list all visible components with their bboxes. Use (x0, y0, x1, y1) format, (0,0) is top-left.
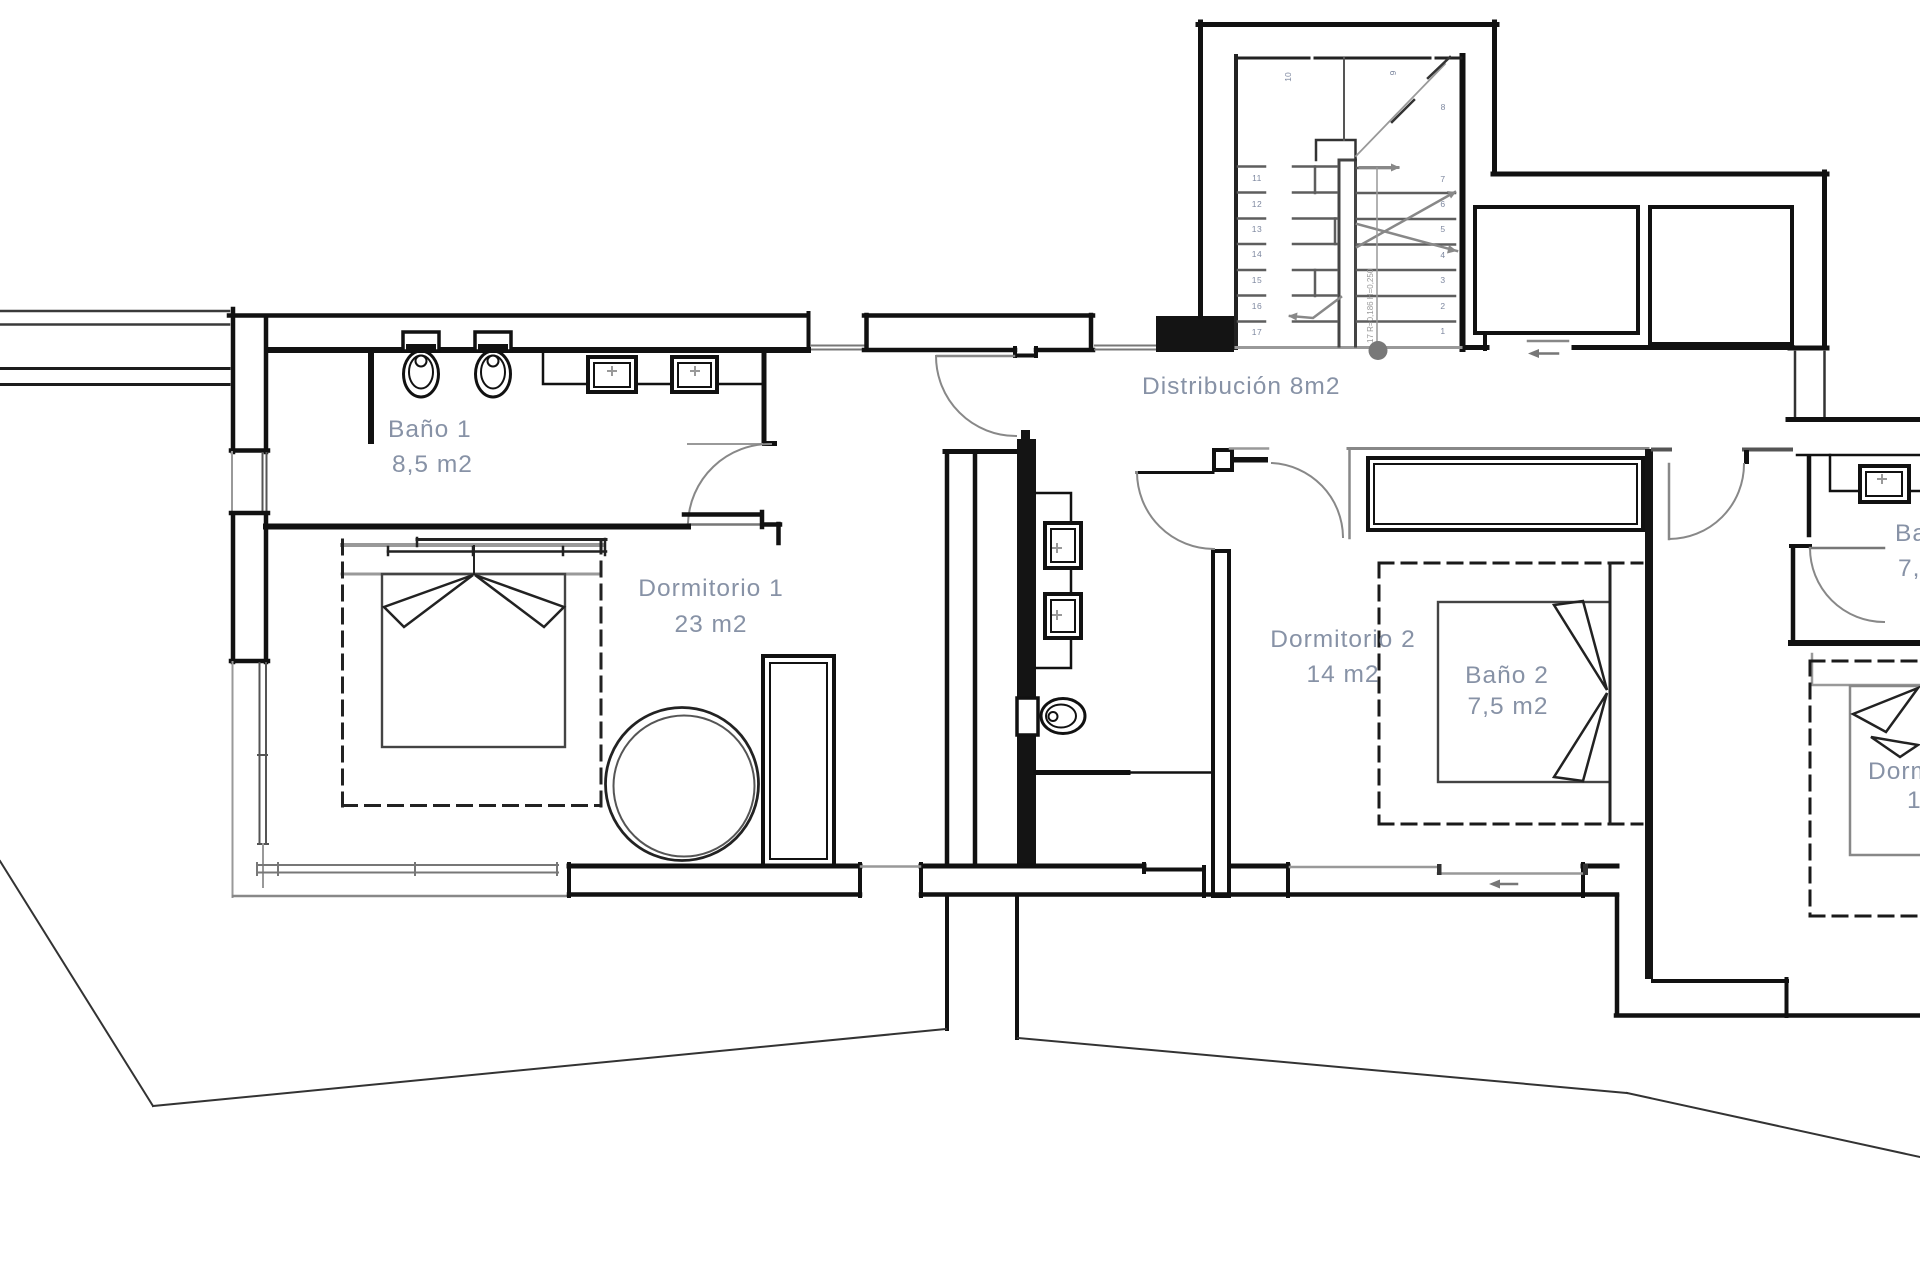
svg-text:Baño 1: Baño 1 (388, 416, 472, 443)
svg-text:17 R=0,186 H=0,250: 17 R=0,186 H=0,250 (1366, 268, 1375, 343)
svg-text:7,5 m2: 7,5 m2 (1898, 555, 1920, 582)
svg-text:7,5 m2: 7,5 m2 (1468, 693, 1549, 720)
svg-text:7: 7 (1440, 174, 1445, 184)
svg-text:8: 8 (1441, 102, 1446, 112)
svg-text:15 m2: 15 m2 (1907, 787, 1920, 814)
svg-text:Dormitorio 3: Dormitorio 3 (1868, 758, 1920, 785)
svg-text:10: 10 (1283, 72, 1293, 82)
svg-text:Distribución 8m2: Distribución 8m2 (1142, 373, 1340, 400)
svg-text:23 m2: 23 m2 (674, 611, 747, 638)
svg-text:Baño 3: Baño 3 (1895, 520, 1920, 547)
svg-text:3: 3 (1440, 275, 1445, 285)
svg-text:1: 1 (1440, 326, 1445, 336)
svg-text:Dormitorio 2: Dormitorio 2 (1270, 626, 1415, 653)
svg-text:11: 11 (1252, 173, 1262, 183)
svg-text:13: 13 (1252, 224, 1262, 234)
svg-text:15: 15 (1252, 275, 1262, 285)
svg-text:Baño 2: Baño 2 (1465, 662, 1549, 689)
svg-text:2: 2 (1440, 301, 1445, 311)
svg-text:Dormitorio 1: Dormitorio 1 (638, 575, 783, 602)
svg-text:8,5 m2: 8,5 m2 (392, 451, 473, 478)
svg-text:5: 5 (1440, 224, 1445, 234)
svg-text:6: 6 (1440, 199, 1445, 209)
svg-text:4: 4 (1440, 250, 1445, 260)
svg-text:14: 14 (1252, 249, 1262, 259)
svg-text:12: 12 (1252, 199, 1262, 209)
svg-text:16: 16 (1252, 301, 1262, 311)
svg-text:14 m2: 14 m2 (1306, 661, 1379, 688)
svg-text:17: 17 (1252, 327, 1262, 337)
svg-text:9: 9 (1388, 70, 1398, 75)
